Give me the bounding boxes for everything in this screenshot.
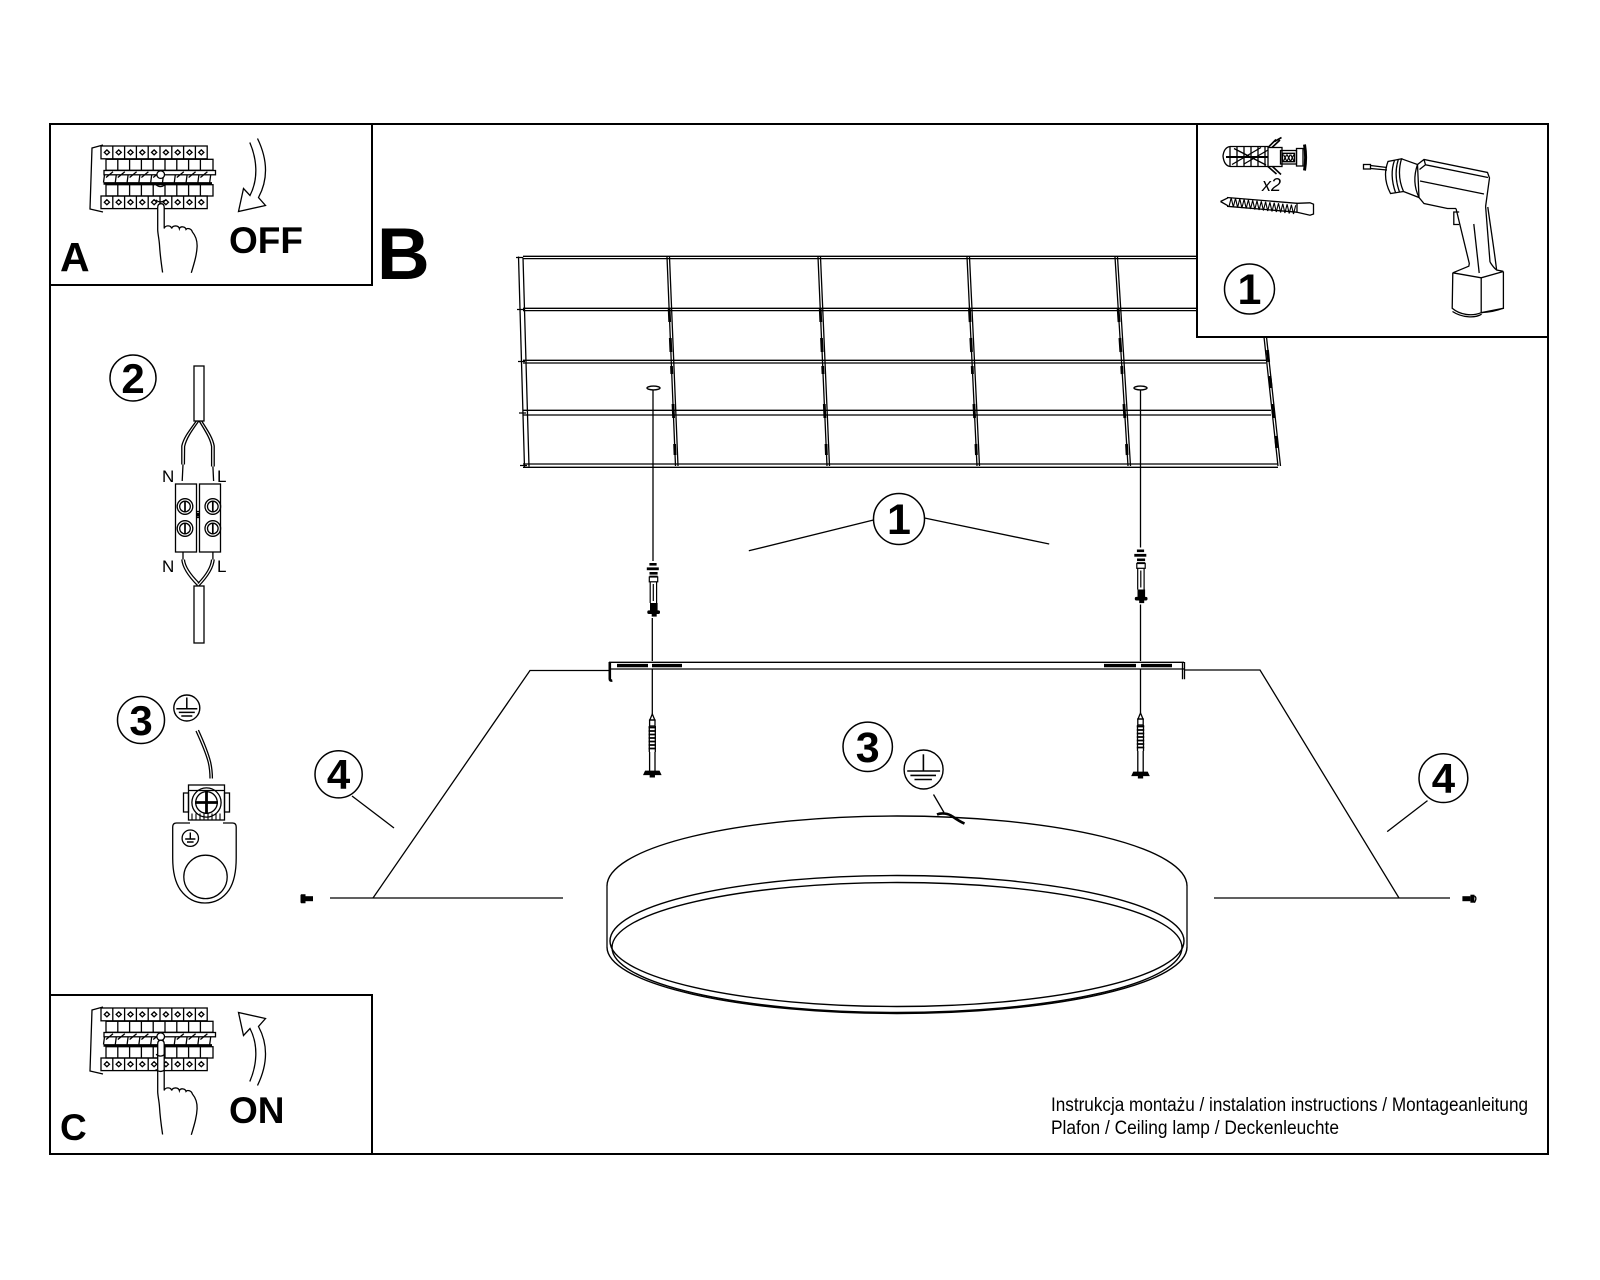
svg-text:L: L: [217, 467, 226, 486]
svg-text:1: 1: [1238, 266, 1262, 314]
svg-text:Plafon / Ceiling lamp / Decken: Plafon / Ceiling lamp / Deckenleuchte: [1051, 1118, 1339, 1139]
svg-text:x2: x2: [1261, 175, 1281, 195]
svg-text:B: B: [377, 214, 430, 295]
svg-text:4: 4: [327, 751, 351, 798]
svg-text:L: L: [217, 557, 226, 576]
svg-text:OFF: OFF: [229, 220, 303, 261]
svg-text:3: 3: [129, 697, 152, 744]
svg-text:C: C: [60, 1107, 87, 1148]
svg-text:N: N: [162, 467, 174, 486]
svg-text:2: 2: [121, 355, 144, 402]
svg-text:N: N: [162, 557, 174, 576]
svg-text:1: 1: [887, 496, 911, 544]
svg-text:4: 4: [1432, 755, 1456, 802]
svg-text:Instrukcja montażu / instalati: Instrukcja montażu / instalation instruc…: [1051, 1095, 1528, 1116]
svg-text:3: 3: [856, 724, 880, 772]
svg-text:A: A: [60, 234, 90, 280]
svg-text:ON: ON: [229, 1090, 285, 1131]
